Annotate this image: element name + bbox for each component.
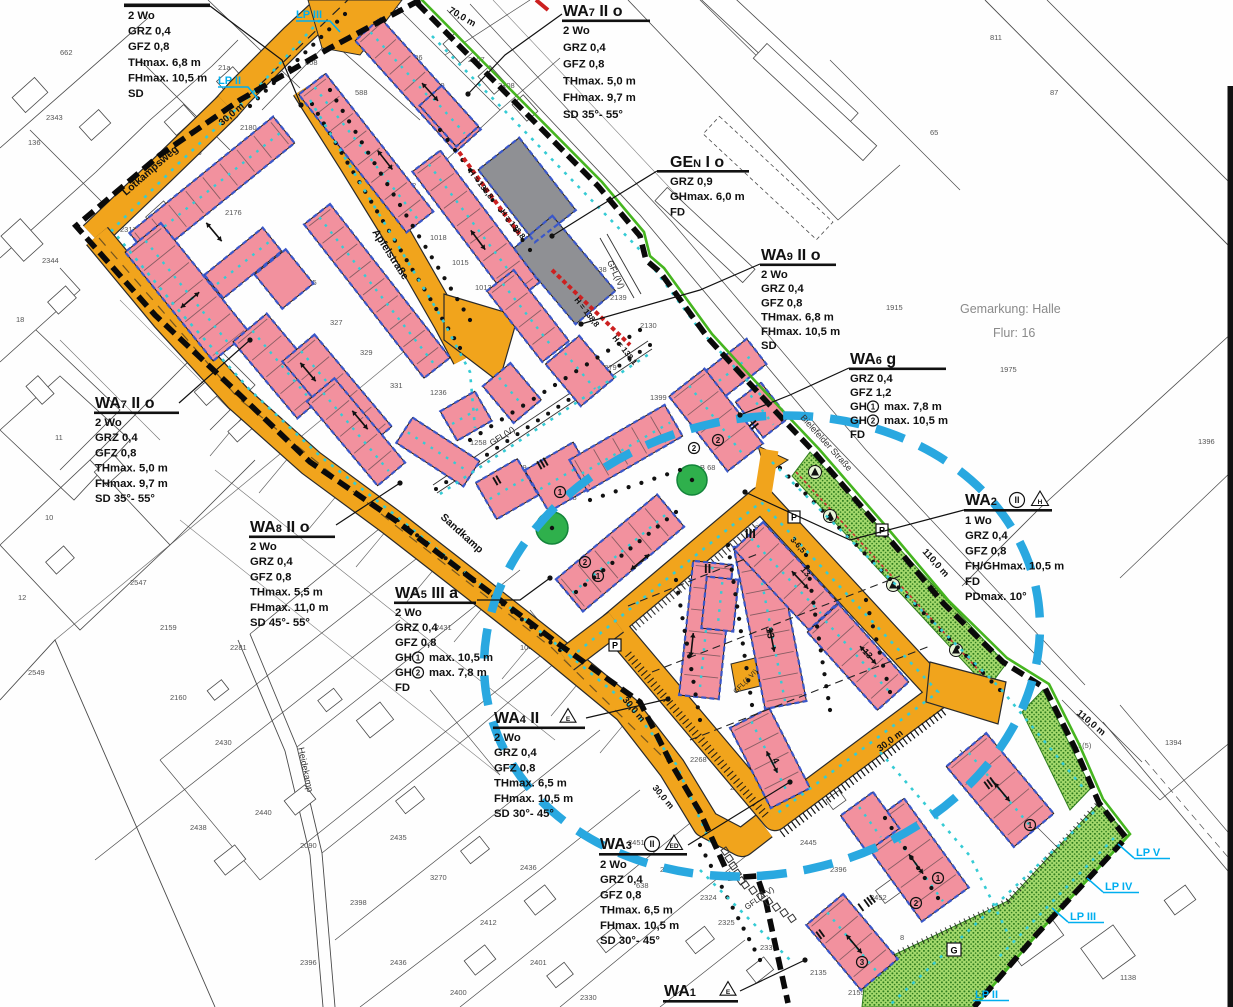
svg-text:GH: GH — [395, 652, 412, 664]
svg-text:WA5 III a: WA5 III a — [395, 585, 458, 602]
svg-text:2330: 2330 — [580, 993, 597, 1002]
svg-text:2 Wo: 2 Wo — [600, 859, 627, 871]
svg-text:1975: 1975 — [1000, 365, 1017, 374]
svg-text:H: H — [1038, 499, 1043, 506]
svg-text:2547: 2547 — [130, 578, 147, 587]
svg-text:10: 10 — [45, 513, 53, 522]
svg-text:2 Wo: 2 Wo — [128, 10, 155, 22]
svg-text:GRZ 0,4: GRZ 0,4 — [965, 530, 1008, 542]
svg-text:GRZ 0,4: GRZ 0,4 — [395, 622, 438, 634]
svg-text:2: 2 — [692, 444, 697, 453]
svg-text:max. 7,8 m: max. 7,8 m — [884, 401, 942, 413]
svg-text:2: 2 — [914, 899, 919, 908]
svg-text:1: 1 — [416, 653, 421, 662]
svg-text:2445: 2445 — [800, 838, 817, 847]
svg-text:max. 10,5 m: max. 10,5 m — [429, 652, 493, 664]
svg-text:GH: GH — [850, 401, 867, 413]
svg-text:FHmax. 10,5 m: FHmax. 10,5 m — [761, 326, 840, 338]
svg-text:FHmax. 10,5 m: FHmax. 10,5 m — [600, 920, 679, 932]
svg-text:2396: 2396 — [300, 958, 317, 967]
svg-text:18: 18 — [16, 315, 24, 324]
svg-text:GFZ 0,8: GFZ 0,8 — [965, 545, 1006, 557]
svg-text:GRZ 0,4: GRZ 0,4 — [563, 42, 606, 54]
svg-text:GH: GH — [850, 415, 867, 427]
svg-text:PDmax. 10°: PDmax. 10° — [965, 591, 1027, 603]
svg-text:SD 30°- 45°: SD 30°- 45° — [600, 935, 660, 947]
svg-text:SD: SD — [761, 340, 777, 352]
svg-text:2 Wo: 2 Wo — [494, 732, 521, 744]
svg-text:THmax. 5,0 m: THmax. 5,0 m — [95, 463, 168, 475]
svg-text:GFZ 0,8: GFZ 0,8 — [128, 41, 169, 53]
svg-text:2436: 2436 — [520, 863, 537, 872]
svg-text:811: 811 — [990, 33, 1002, 42]
svg-text:2325: 2325 — [718, 918, 735, 927]
svg-text:1394: 1394 — [1165, 738, 1182, 747]
svg-text:136: 136 — [28, 138, 41, 147]
svg-text:2398: 2398 — [350, 898, 367, 907]
svg-text:SD 30°- 45°: SD 30°- 45° — [494, 808, 554, 820]
svg-text:LP II: LP II — [218, 75, 241, 87]
svg-text:SD: SD — [128, 88, 144, 100]
svg-text:THmax. 5,0 m: THmax. 5,0 m — [563, 75, 636, 87]
svg-text:3270: 3270 — [430, 873, 447, 882]
svg-text:SD 35°- 55°: SD 35°- 55° — [563, 109, 623, 121]
svg-text:1: 1 — [558, 488, 563, 497]
svg-text:2159: 2159 — [160, 623, 177, 632]
svg-text:GFZ 0,8: GFZ 0,8 — [761, 297, 802, 309]
svg-text:FD: FD — [850, 429, 865, 441]
svg-text:1396: 1396 — [1198, 437, 1215, 446]
svg-text:1: 1 — [1028, 821, 1033, 830]
svg-text:12: 12 — [18, 593, 26, 602]
svg-text:2343: 2343 — [46, 113, 63, 122]
svg-text:P: P — [612, 641, 618, 651]
svg-text:LP II: LP II — [975, 989, 998, 1001]
svg-text:2344: 2344 — [42, 256, 59, 265]
svg-text:2: 2 — [416, 668, 421, 677]
svg-text:2401: 2401 — [530, 958, 547, 967]
svg-text:GRZ 0,4: GRZ 0,4 — [850, 373, 893, 385]
svg-text:Gemarkung: Halle: Gemarkung: Halle — [960, 302, 1061, 316]
svg-text:2130: 2130 — [640, 321, 657, 330]
svg-text:THmax. 6,8 m: THmax. 6,8 m — [128, 57, 201, 69]
svg-text:2 Wo: 2 Wo — [761, 269, 788, 281]
svg-text:2176: 2176 — [225, 208, 242, 217]
svg-text:329: 329 — [360, 348, 373, 357]
svg-text:E: E — [726, 989, 731, 996]
svg-text:1 Wo: 1 Wo — [965, 515, 992, 527]
svg-text:2324: 2324 — [700, 893, 717, 902]
svg-text:21a: 21a — [218, 63, 231, 72]
svg-text:FHmax. 11,0 m: FHmax. 11,0 m — [250, 602, 329, 614]
svg-text:II: II — [649, 839, 654, 849]
svg-text:THmax. 6,8 m: THmax. 6,8 m — [761, 312, 834, 324]
svg-text:588: 588 — [355, 88, 368, 97]
svg-text:331: 331 — [390, 381, 403, 390]
svg-text:327: 327 — [330, 318, 343, 327]
svg-text:2090: 2090 — [300, 841, 317, 850]
svg-text:1015: 1015 — [452, 258, 469, 267]
svg-text:SD 45°- 55°: SD 45°- 55° — [250, 617, 310, 629]
svg-text:2281: 2281 — [230, 643, 247, 652]
svg-text:FH/GHmax. 10,5 m: FH/GHmax. 10,5 m — [965, 561, 1064, 573]
svg-text:2: 2 — [716, 436, 721, 445]
svg-text:GFZ 0,8: GFZ 0,8 — [95, 447, 136, 459]
svg-text:2180: 2180 — [240, 123, 257, 132]
svg-text:FD: FD — [965, 576, 980, 588]
svg-text:2: 2 — [583, 558, 588, 567]
svg-text:III: III — [745, 526, 756, 541]
svg-text:2: 2 — [871, 416, 876, 425]
svg-text:1399: 1399 — [650, 393, 667, 402]
svg-text:2440: 2440 — [255, 808, 272, 817]
svg-text:GRZ 0,4: GRZ 0,4 — [95, 432, 138, 444]
svg-text:3: 3 — [860, 958, 865, 967]
svg-text:GFZ 0,8: GFZ 0,8 — [563, 59, 604, 71]
svg-text:WA6 g: WA6 g — [850, 351, 896, 368]
svg-text:GFZ 1,2: GFZ 1,2 — [850, 387, 891, 399]
svg-text:GRZ 0,4: GRZ 0,4 — [761, 283, 804, 295]
svg-text:1: 1 — [936, 874, 941, 883]
svg-text:2 Wo: 2 Wo — [250, 541, 277, 553]
svg-text:Flur: 16: Flur: 16 — [993, 326, 1035, 340]
svg-text:ED: ED — [669, 843, 678, 850]
svg-text:2438: 2438 — [190, 823, 207, 832]
svg-text:LP V: LP V — [1136, 847, 1161, 859]
svg-text:2 Wo: 2 Wo — [95, 417, 122, 429]
svg-text:GFZ 0,8: GFZ 0,8 — [250, 571, 291, 583]
svg-text:THmax. 5,5 m: THmax. 5,5 m — [250, 587, 323, 599]
svg-text:65: 65 — [930, 128, 938, 137]
svg-text:2436: 2436 — [390, 958, 407, 967]
svg-text:1: 1 — [596, 572, 601, 581]
svg-text:GFZ 0,8: GFZ 0,8 — [494, 762, 535, 774]
svg-text:662: 662 — [60, 48, 73, 57]
svg-text:2430: 2430 — [215, 738, 232, 747]
svg-text:GRZ 0,9: GRZ 0,9 — [670, 176, 713, 188]
svg-text:FHmax. 9,7 m: FHmax. 9,7 m — [95, 478, 168, 490]
svg-text:GRZ 0,4: GRZ 0,4 — [600, 874, 643, 886]
svg-text:max. 10,5 m: max. 10,5 m — [884, 415, 948, 427]
svg-text:87: 87 — [1050, 88, 1058, 97]
svg-text:FD: FD — [670, 206, 685, 218]
svg-text:2435: 2435 — [390, 833, 407, 842]
svg-text:1: 1 — [871, 402, 876, 411]
svg-text:2 Wo: 2 Wo — [395, 607, 422, 619]
svg-text:GH: GH — [395, 667, 412, 679]
svg-text:THmax. 6,5 m: THmax. 6,5 m — [494, 778, 567, 790]
svg-text:E: E — [566, 716, 571, 723]
svg-text:1138: 1138 — [1120, 973, 1136, 982]
svg-text:GRZ 0,4: GRZ 0,4 — [128, 26, 171, 38]
svg-text:2400: 2400 — [450, 988, 467, 997]
svg-text:II: II — [1014, 495, 1019, 505]
svg-text:1018: 1018 — [430, 233, 447, 242]
svg-text:GFZ 0,8: GFZ 0,8 — [395, 637, 436, 649]
svg-text:GFZ 0,8: GFZ 0,8 — [600, 889, 641, 901]
svg-text:LP III: LP III — [296, 9, 322, 21]
svg-text:1915: 1915 — [886, 303, 903, 312]
svg-text:II: II — [704, 561, 711, 576]
svg-text:SD 35°- 55°: SD 35°- 55° — [95, 493, 155, 505]
svg-text:FHmax. 10,5 m: FHmax. 10,5 m — [494, 793, 573, 805]
svg-text:GHmax. 6,0 m: GHmax. 6,0 m — [670, 191, 745, 203]
svg-text:FD: FD — [395, 682, 410, 694]
svg-text:1236: 1236 — [430, 388, 447, 397]
svg-text:max. 7,8 m: max. 7,8 m — [429, 667, 487, 679]
svg-text:2135: 2135 — [810, 968, 827, 977]
svg-text:THmax. 6,5 m: THmax. 6,5 m — [600, 905, 673, 917]
svg-text:WA4 II: WA4 II — [494, 710, 539, 727]
svg-text:FHmax. 10,5 m: FHmax. 10,5 m — [128, 72, 207, 84]
svg-text:GRZ 0,4: GRZ 0,4 — [494, 747, 537, 759]
svg-text:1258: 1258 — [470, 438, 487, 447]
svg-text:11: 11 — [55, 433, 63, 442]
svg-text:LP IV: LP IV — [1105, 881, 1133, 893]
svg-text:2412: 2412 — [480, 918, 497, 927]
svg-text:2160: 2160 — [170, 693, 187, 702]
svg-text:LP III: LP III — [1070, 911, 1096, 923]
svg-text:2 Wo: 2 Wo — [563, 25, 590, 37]
svg-text:8: 8 — [900, 933, 904, 942]
svg-text:GRZ 0,4: GRZ 0,4 — [250, 556, 293, 568]
svg-text:FHmax. 9,7 m: FHmax. 9,7 m — [563, 92, 636, 104]
svg-text:G: G — [950, 946, 957, 956]
svg-text:2268: 2268 — [690, 755, 707, 764]
svg-text:2549: 2549 — [28, 668, 45, 677]
